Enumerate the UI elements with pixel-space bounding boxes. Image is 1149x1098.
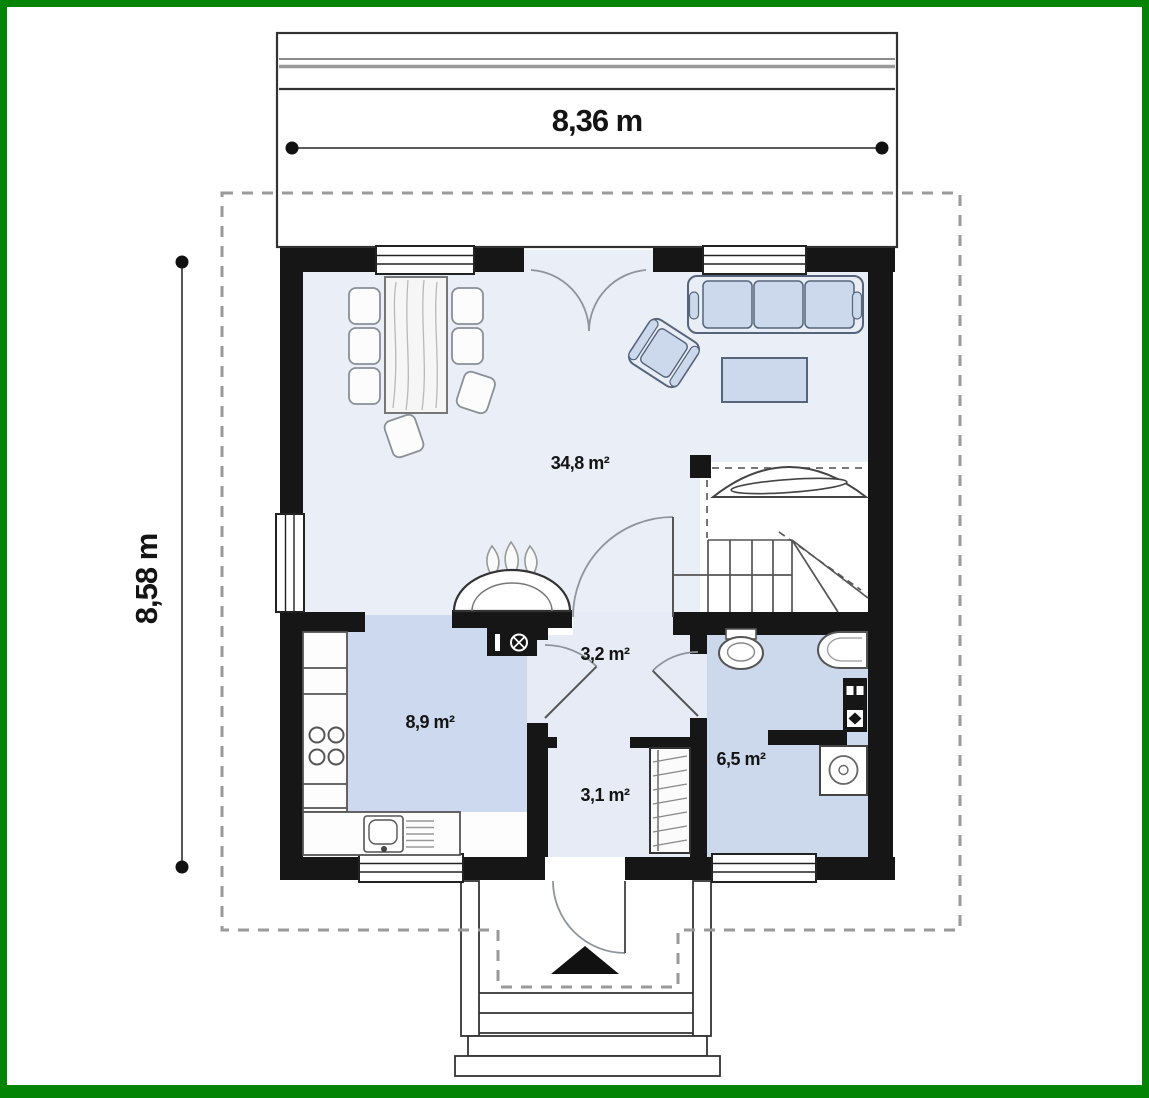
hall-lower-area-label: 3,1 m² — [580, 785, 630, 805]
dimension-endpoint-dot — [176, 861, 189, 874]
porch-step — [468, 1036, 707, 1056]
living-hall-opening — [573, 612, 673, 635]
width-dimension-label: 8,36 m — [552, 103, 643, 138]
kitchen-counter-left — [303, 632, 347, 812]
dimension-endpoint-dot — [176, 256, 189, 269]
sofa-arm — [690, 292, 699, 319]
floor-plan-drawing: 8,36 m 8,58 m — [0, 0, 1149, 1098]
stove-burner — [310, 750, 325, 765]
sofa-cushion — [805, 281, 854, 328]
hall-upper-area-label: 3,2 m² — [580, 644, 630, 664]
window-left-wall — [276, 514, 304, 612]
hall-wardrobe — [650, 748, 690, 853]
window-top-left — [376, 246, 474, 274]
sofa — [688, 276, 863, 333]
terrace-roof-band — [277, 33, 897, 247]
sofa-arm — [853, 292, 862, 319]
coffee-table — [722, 358, 807, 402]
kitchen-area-label: 8,9 m² — [405, 712, 455, 732]
dimension-endpoint-dot — [286, 142, 299, 155]
living-room-area-label: 34,8 m² — [551, 453, 610, 473]
kitchen-sink-basin — [369, 820, 397, 844]
sofa-cushion — [754, 281, 803, 328]
bathroom-area-label: 6,5 m² — [716, 749, 766, 769]
dining-chair — [349, 328, 380, 364]
terrace-door-threshold — [524, 250, 653, 272]
stove-burner — [310, 728, 325, 743]
stove-burner — [329, 750, 344, 765]
window-top-right — [703, 246, 806, 274]
window-bathroom — [712, 854, 816, 882]
washing-machine-drum — [830, 756, 858, 784]
bathroom-doorway-floor — [690, 654, 707, 718]
porch-rail-left — [461, 881, 479, 1036]
sink-faucet — [381, 846, 387, 852]
dining-chair — [349, 368, 380, 404]
floor-plan-page: 8,36 m 8,58 m — [0, 0, 1149, 1098]
dining-chair — [452, 288, 483, 324]
dimension-endpoint-dot — [876, 142, 889, 155]
sofa-cushion — [703, 281, 752, 328]
utility-shaft-vent — [857, 686, 864, 695]
utility-shaft-vent — [847, 686, 854, 695]
toilet — [719, 637, 763, 669]
window-kitchen — [359, 854, 463, 882]
dining-chair — [452, 328, 483, 364]
porch-rail-right — [693, 881, 711, 1036]
hearth-bar-icon — [495, 634, 500, 651]
fireplace-base — [452, 610, 572, 628]
height-dimension-label: 8,58 m — [129, 534, 164, 625]
chimney — [690, 455, 711, 478]
dining-chair — [349, 288, 380, 324]
porch-step — [455, 1056, 720, 1076]
stove-burner — [329, 728, 344, 743]
hall-connecting-opening — [557, 737, 630, 748]
